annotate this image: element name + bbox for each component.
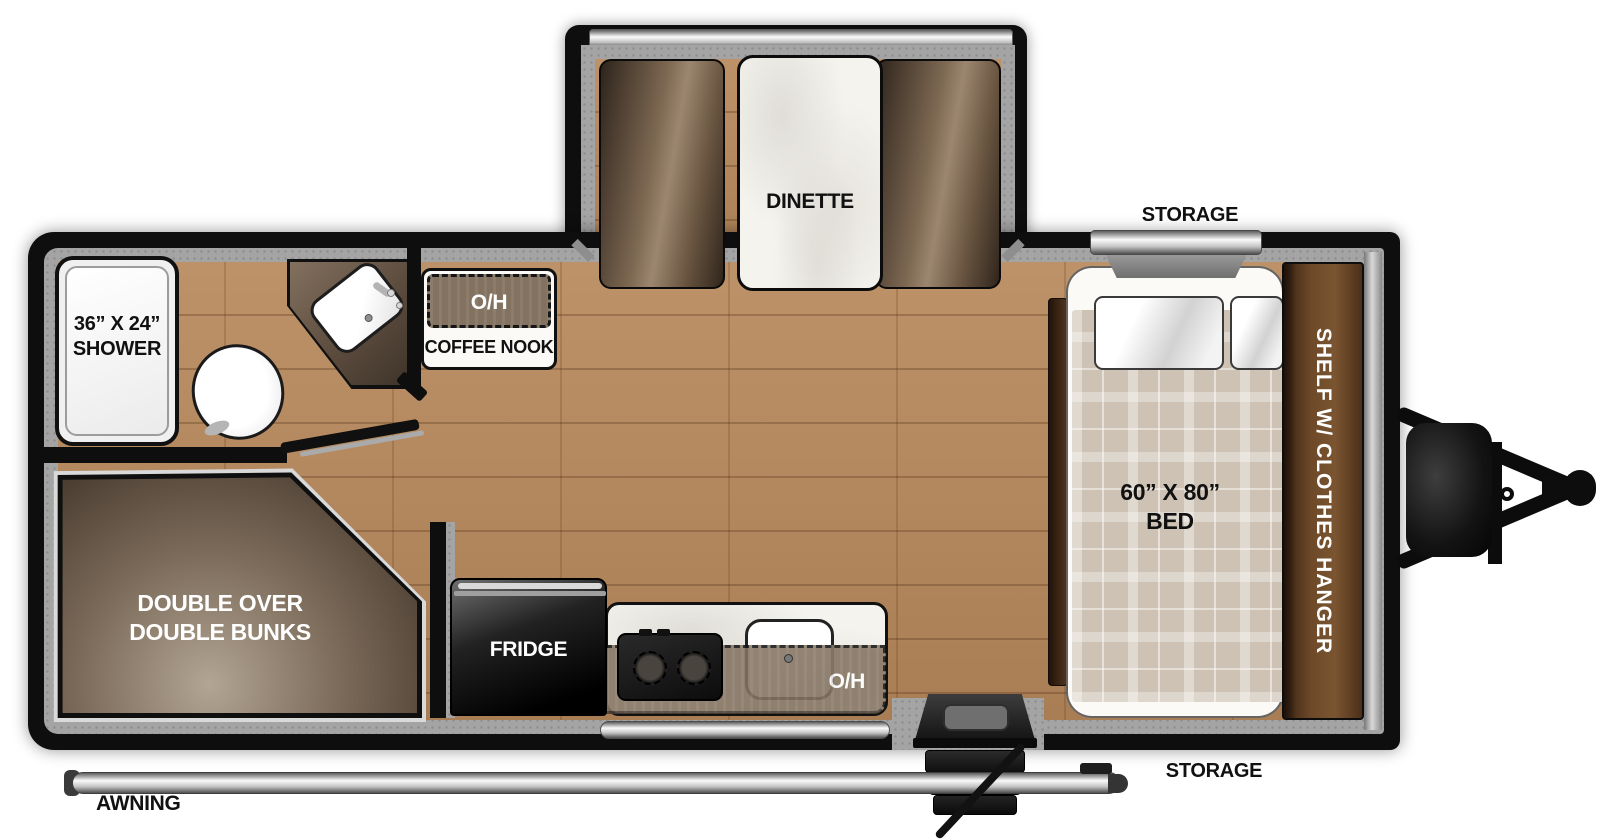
- entry-platform-tread: [943, 704, 1009, 731]
- storage-top-label: STORAGE: [1110, 204, 1270, 227]
- storage-top-hatch: [1090, 230, 1262, 255]
- front-wall-trim: [1364, 252, 1382, 730]
- bath-faucet-dot2: [396, 302, 403, 309]
- bunks-label: DOUBLE OVER DOUBLE BUNKS: [95, 589, 346, 647]
- shower: 36” X 24” SHOWER: [55, 256, 179, 446]
- storage-top-hatch-inner: [1098, 252, 1254, 278]
- dinette-table: DINETTE: [737, 55, 883, 291]
- bunks-label-line2: DOUBLE BUNKS: [129, 619, 311, 645]
- dinette-bench-left: [599, 59, 725, 289]
- shower-word-text: SHOWER: [73, 338, 161, 360]
- bed-label: 60” X 80” BED: [1080, 478, 1260, 536]
- kitchen-exterior-molding: [600, 721, 890, 739]
- stove-burner-left-icon: [633, 651, 667, 685]
- stove: [617, 633, 723, 701]
- shower-label: 36” X 24” SHOWER: [59, 312, 175, 362]
- fridge: FRIDGE: [450, 578, 607, 716]
- dinette-label: DINETTE: [740, 190, 880, 214]
- storage-bottom-label: STORAGE: [1134, 760, 1294, 783]
- kitchen-sink-drain-icon: [784, 654, 793, 663]
- bathroom-right-wall: [407, 248, 421, 386]
- coffee-nook-overhead-cabinet: O/H: [427, 274, 551, 328]
- bed-pillow-left: [1094, 296, 1224, 370]
- propane-tank: [1406, 423, 1492, 557]
- stove-burner-right-icon: [677, 651, 711, 685]
- kitchen-divider-wall: [430, 522, 446, 718]
- coffee-nook: O/H COFFEE NOOK: [421, 268, 557, 370]
- sink-drain-icon: [363, 312, 374, 323]
- coffee-nook-oh-label: O/H: [430, 291, 548, 315]
- wardrobe-bevel: [1284, 264, 1296, 718]
- awning-right-cap: [1108, 774, 1128, 793]
- bath-faucet-dot1: [387, 289, 395, 297]
- fridge-top-trim: [458, 583, 602, 589]
- bed-headboard: [1048, 298, 1068, 686]
- bathroom-bottom-wall: [28, 447, 287, 463]
- wardrobe-shelf: SHELF W/ CLOTHES HANGER: [1282, 262, 1364, 720]
- awning-rail: [72, 772, 1120, 794]
- floorplan-canvas: DINETTE 36” X 24” SHOWER O/H COFFEE NOOK: [0, 0, 1600, 839]
- stove-knob-1: [639, 629, 652, 636]
- dinette-bench-right: [875, 59, 1001, 289]
- coffee-nook-label: COFFEE NOOK: [424, 337, 554, 358]
- bed-size-text: 60” X 80”: [1120, 479, 1220, 505]
- bed-word-text: BED: [1146, 508, 1194, 534]
- wardrobe-label: SHELF W/ CLOTHES HANGER: [1311, 328, 1335, 654]
- awning-label: AWNING: [96, 792, 181, 816]
- awning-tab: [1080, 763, 1112, 774]
- fridge-top-trim2: [454, 591, 606, 596]
- hitch-coupler: [1564, 470, 1596, 506]
- bunks-label-line1: DOUBLE OVER: [137, 590, 302, 616]
- kitchen-oh-label: O/H: [829, 670, 865, 694]
- fridge-label: FRIDGE: [452, 638, 605, 662]
- stove-knob-2: [657, 629, 670, 636]
- shower-size-text: 36” X 24”: [74, 313, 160, 335]
- bed-pillow-right: [1230, 296, 1284, 370]
- hitch-safety-ring-icon: [1500, 487, 1514, 501]
